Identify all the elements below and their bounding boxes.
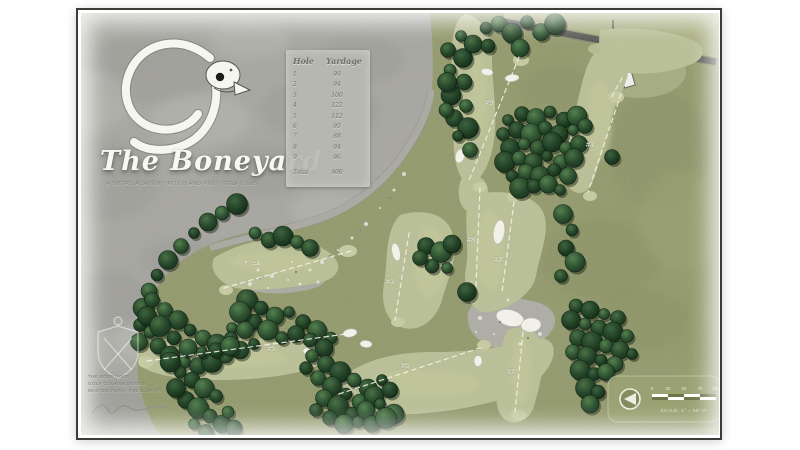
hole-yardage: 100 (319, 91, 355, 101)
scale-bar (652, 394, 716, 400)
yardage-row: 5112 (286, 112, 370, 122)
yardage-col-yardage: Yardage (326, 56, 362, 66)
yardage-row: 199 (286, 70, 370, 80)
yardage-table: Hole Yardage 199 294 3100 4122 5112 695 … (286, 50, 370, 187)
hole-yardage: 88 (319, 132, 355, 142)
hole-yardage: 95 (319, 122, 355, 132)
hole-label: #8 (467, 235, 475, 244)
yardage-row: 894 (286, 143, 370, 153)
hole-number: 6 (293, 122, 309, 132)
hole-label: #1 (586, 140, 594, 149)
hole-label: #3 (386, 277, 394, 286)
yardage-row: 695 (286, 122, 370, 132)
total-label: Total (293, 169, 313, 176)
yardage-row: 788 (286, 132, 370, 142)
yardage-row: 4122 (286, 101, 370, 111)
yardage-col-hole: Hole (293, 56, 314, 66)
page: #1 #2 #3 #4 #5 #6 #7 #8 #9 (0, 0, 800, 450)
credits-block: THE BONEYARD GOLF COURSE DESIGN MASTER P… (88, 373, 163, 394)
hole-yardage: 94 (319, 80, 355, 90)
yardage-row: 3100 (286, 91, 370, 101)
map-legend: 0 25 50 75 100 SCALE: 1" = 50'-0" (608, 376, 719, 422)
hole-label: #9 (485, 98, 493, 107)
hole-yardage: 112 (319, 112, 355, 122)
hole-number: 7 (293, 132, 309, 142)
hole-label: #4 (252, 259, 260, 268)
scale-tick: 25 (665, 386, 671, 391)
hole-label: #7 (507, 367, 515, 376)
hole-label: #6 (401, 361, 409, 370)
yardage-total-row: Total 900 (286, 169, 370, 176)
hole-number: 9 (293, 153, 309, 163)
hole-yardage: 96 (319, 153, 355, 163)
hole-number: 1 (293, 70, 309, 80)
hole-yardage: 99 (319, 70, 355, 80)
credits-line: MASTER PLAN · FINAL DRAFT (88, 387, 163, 394)
scale-tick: 75 (697, 386, 703, 391)
hole-number: 5 (293, 112, 309, 122)
hole-label: #2 (494, 255, 502, 264)
hole-number: 8 (293, 143, 309, 153)
scale-tick: 50 (681, 386, 687, 391)
scale-tick: 100 (712, 386, 719, 391)
course-map: #1 #2 #3 #4 #5 #6 #7 #8 #9 (81, 13, 719, 435)
scale-caption: SCALE: 1" = 50'-0" (661, 408, 708, 413)
total-value: 900 (319, 169, 355, 176)
hole-number: 2 (293, 80, 309, 90)
yardage-row: 996 (286, 153, 370, 163)
hole-number: 3 (293, 91, 309, 101)
hole-label: #5 (267, 344, 275, 353)
course-subtitle: A SHORT ACADEMY PITCH AND PUTT GOLF CLUB (106, 181, 258, 187)
hole-number: 4 (293, 101, 309, 111)
credits-line: THE BONEYARD (88, 373, 163, 380)
credits-line: GOLF COURSE DESIGN (88, 380, 163, 387)
yardage-row: 294 (286, 80, 370, 90)
hole-yardage: 122 (319, 101, 355, 111)
hole-yardage: 94 (319, 143, 355, 153)
